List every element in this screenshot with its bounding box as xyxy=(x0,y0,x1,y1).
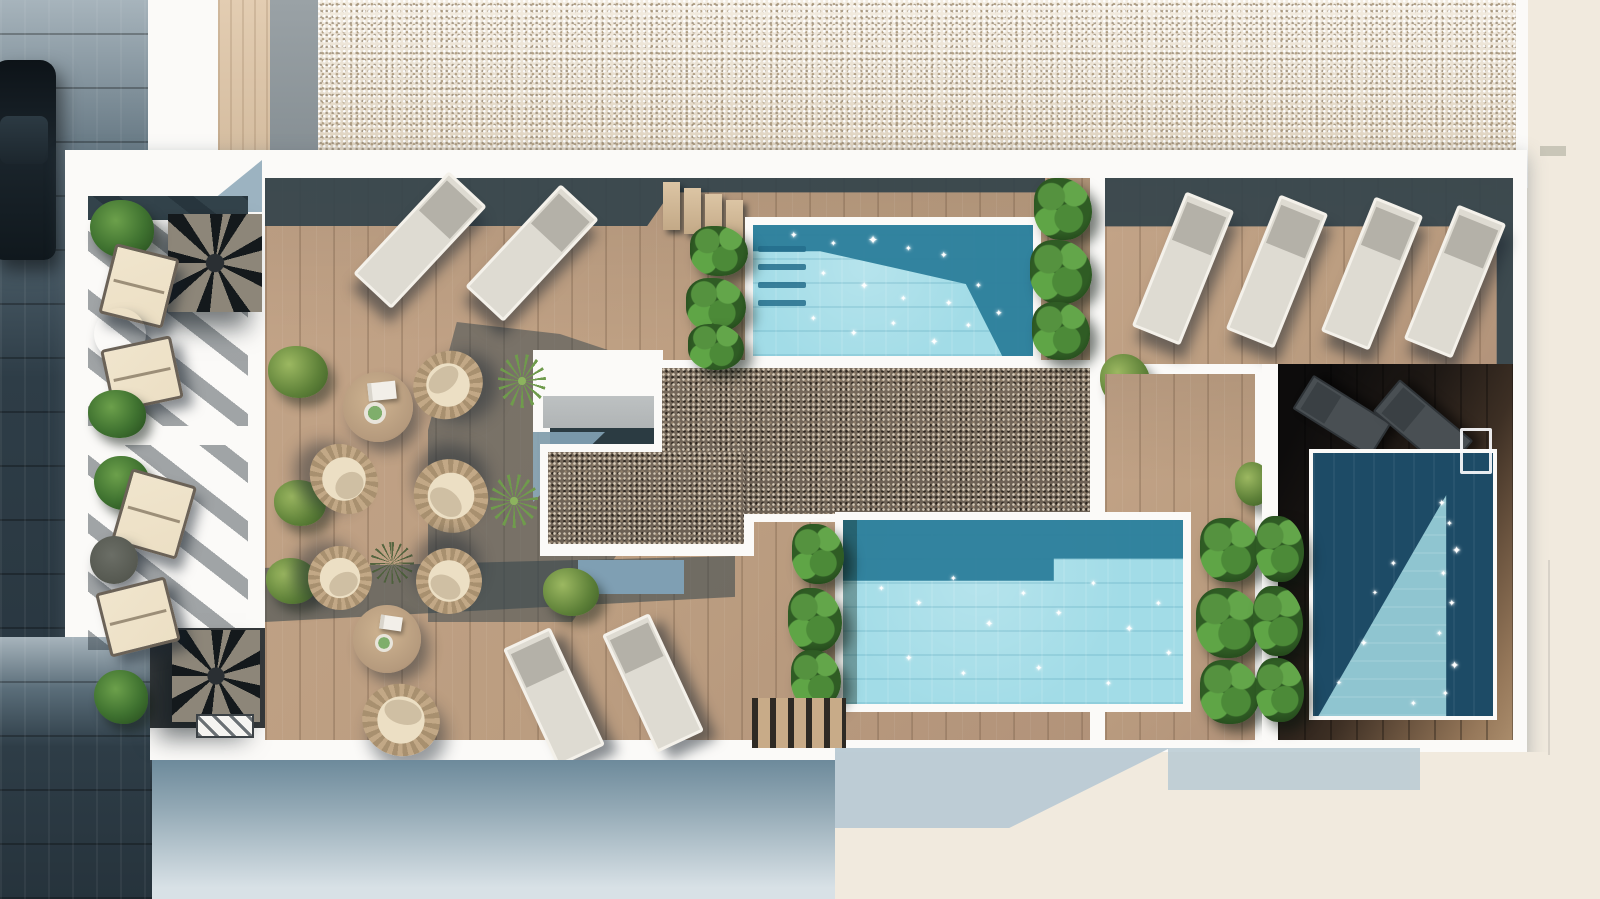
parked-car xyxy=(0,60,56,260)
balcony1-spiral-stair xyxy=(168,214,262,312)
top-wood-walkway xyxy=(218,0,270,170)
seating1-bush-1 xyxy=(268,346,328,398)
seating2-bush-2 xyxy=(543,568,599,616)
stair-tread-1 xyxy=(663,182,680,230)
balcony1-plant-bottom xyxy=(88,390,146,438)
pool1-step-2 xyxy=(758,264,806,270)
stair-tread-2 xyxy=(684,188,701,234)
yucca-plant-1 xyxy=(498,354,546,408)
pebble-roof xyxy=(318,0,1516,158)
roof-grey-mark xyxy=(1540,146,1566,156)
balcony2-plant-bottom xyxy=(94,670,148,724)
pool1-step-4 xyxy=(758,300,806,306)
pool1-step-1 xyxy=(758,246,806,252)
gravel-bed-ext xyxy=(548,452,744,544)
pool2-plant-shade xyxy=(843,520,857,704)
rooftop-terrace-rendering: ✦✦✦✦✦✦✦✦✦✦✦✦✦✦✦✦✦✦✦✦✦✦✦✦✦✦✦✦✦✦✦✦✦✦✦✦✦✦✦✦… xyxy=(0,0,1600,899)
pool2-slat-deck xyxy=(752,698,846,748)
pool1-plants-left-1 xyxy=(690,226,748,276)
yucca-plant-2 xyxy=(490,474,538,528)
seating2-plant-pot xyxy=(375,634,393,652)
top-grey-walkway xyxy=(270,0,318,170)
stair-hatch-grate xyxy=(196,714,254,738)
seating2-book xyxy=(379,615,403,632)
skylight-grey-slab xyxy=(543,396,661,428)
seating1-book xyxy=(367,381,397,402)
scene-canvas: ✦✦✦✦✦✦✦✦✦✦✦✦✦✦✦✦✦✦✦✦✦✦✦✦✦✦✦✦✦✦✦✦✦✦✦✦✦✦✦✦… xyxy=(0,0,1600,899)
pool1-plants-left-3 xyxy=(688,324,744,370)
divider-wall-white xyxy=(1090,158,1106,514)
seating2-palm xyxy=(370,542,414,584)
balcony2-side-table xyxy=(90,536,138,584)
pool3-ladder xyxy=(1460,428,1492,474)
facade-right-line xyxy=(1548,560,1550,755)
seating1-plant-pot xyxy=(364,402,386,424)
facade-shadow-step xyxy=(1168,748,1420,790)
facade-bottom-left xyxy=(152,760,835,899)
pool1-step-3 xyxy=(758,282,806,288)
balcony2-spiral-stair xyxy=(172,630,260,722)
